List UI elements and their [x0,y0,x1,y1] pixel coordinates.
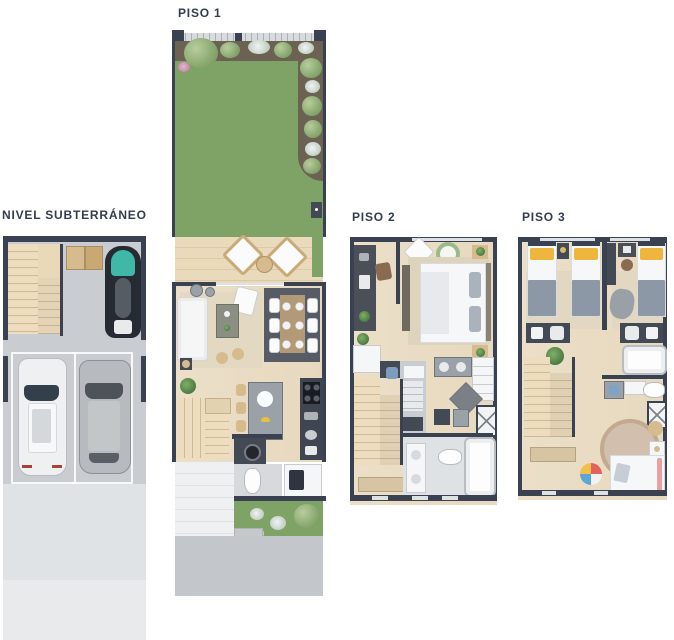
dining-table [280,295,305,353]
plan-nivel-subterraneo [3,236,146,640]
label-piso-2: PISO 2 [352,210,395,224]
vanity-sink [625,326,639,340]
p3-door-gap [542,491,556,495]
bath-vanity [234,438,266,464]
vanity-faucet-items [646,327,658,339]
console-table [358,477,406,492]
dining-rug [264,288,320,362]
bathtub [622,345,667,375]
vanity-faucet-items [531,327,543,339]
garden-left-wall [172,41,175,237]
desk-laptop [623,246,631,253]
piso1-stair-run [205,414,229,458]
p3-staircase [524,357,550,437]
kitchen-plant [180,378,196,394]
storage-box [66,246,85,270]
p3-door-gap [594,491,608,495]
desk-laptop [359,275,370,289]
toilet [244,468,261,494]
side-plant [205,287,215,297]
parking-left-wall-stub [3,356,8,402]
garage-top-wall [3,236,146,242]
p3-stair-run [550,373,572,437]
p2-door-gap [442,496,458,500]
jet-ski-seat [115,278,131,318]
washing-machine [289,470,304,490]
white-car-taillight [22,465,32,468]
stair-shelf [205,398,231,414]
coffee-table [216,304,239,338]
appliance-dial [439,362,449,372]
p3-left-wall [518,237,522,495]
gray-car [79,360,131,474]
nightstand [472,245,488,259]
coffee-table-decor [224,311,230,317]
closet-drawers [403,417,423,431]
white-car-sunroof [32,409,51,443]
white-flowers [305,80,320,93]
garage-right-wall [141,236,146,340]
study-desk [618,243,636,257]
laundry-cabinet [284,464,322,498]
toddler-bed-footboard [657,458,662,492]
bed-headboard [528,242,556,246]
garden-bush [300,58,322,78]
cube-dot [654,446,660,452]
garden-bush [303,158,321,174]
p2-door-gap [372,496,388,500]
p2-floor-plant [357,333,369,345]
bed-pillow-yellow [640,248,663,260]
bed-blanket [638,280,665,316]
plan-piso-1 [172,30,326,596]
house-left-wall [172,282,176,462]
piso1-driveway [175,536,323,596]
rear-garden-bush [294,504,320,528]
storage-box [85,246,103,270]
shelf-basin [609,385,619,395]
floor-lamp [180,358,192,370]
dining-chair [269,298,280,313]
white-car [18,358,67,476]
bar-stool [236,384,246,396]
laundry-basket [453,409,469,427]
bath-shelf [604,381,624,399]
toilet [438,449,462,465]
garden-bush [302,96,322,116]
laundry-basket [434,409,450,425]
island-sink [257,391,273,407]
toddler-pillow [613,463,630,484]
p2-door-gap [412,496,428,500]
p2-room-divider [396,242,400,304]
bed-headboard [486,263,491,341]
single-bed [571,243,601,317]
p3-window-top [540,238,595,241]
single-bed [637,243,666,317]
fence-gate-post [235,33,242,41]
dining-chair [307,318,318,333]
vanity-sink [411,450,421,460]
nightstand-plant [476,247,485,256]
banana-decor [261,417,270,422]
toilet [643,382,665,398]
bed-pillow-yellow [530,248,554,260]
garage-driveway-sidewalk [3,580,146,640]
single-bed [527,243,557,317]
study-desk [354,245,376,331]
closet-shelf [403,365,425,379]
parking-right-wall-stub [141,356,146,402]
plan-piso-3 [518,237,667,500]
pouf [232,348,244,360]
plan-piso-2 [350,237,497,505]
vanity-sink [550,326,564,340]
garage-stair-wall [60,244,63,336]
rear-garden-flowers [270,516,286,530]
bath-vanity [620,323,663,343]
kitchen-counter [300,378,323,460]
counter-sink-small [305,430,317,440]
garden-bush [274,42,292,58]
jet-ski [105,246,141,338]
garden-bush [304,120,322,138]
sofa [177,297,208,361]
floor-lamp-shade [182,360,190,368]
desk-chair [375,262,393,281]
bathtub [464,437,496,497]
dining-chair [307,338,318,353]
bed-blanket [572,280,600,316]
bath-sink [244,444,261,461]
toddler-bed [610,455,665,495]
round-side-table [648,421,663,436]
gray-car-roof [88,401,120,451]
side-lamp [190,284,203,297]
coffee-table-plant [224,325,230,331]
kitchen-island [248,382,283,440]
p3-bottom-wall [518,490,667,496]
appliance-dial [456,362,466,372]
bed-blanket [421,272,449,334]
pink-flowers [178,62,190,72]
deck-side-grass [312,237,323,277]
bar-stool [236,420,246,432]
white-flowers [305,142,321,156]
sliding-door [216,283,284,285]
gray-car-rear-glass [89,453,119,463]
white-car-taillight [52,465,62,468]
round-side-table [256,256,273,273]
dining-chair [269,318,280,333]
utility-box [311,202,322,218]
p3-stair-wall [572,357,575,437]
floorplan-sheet: PISO 1 NIVEL SUBTERRÁNEO PISO 2 PISO 3 [0,0,674,640]
desk-chair [621,259,633,271]
laundry-counter [434,357,472,377]
bar-stool [236,402,246,414]
bed-pillow [469,272,481,298]
double-bed [420,263,486,343]
shelf-unit [607,243,616,285]
garage-stair-run [38,278,60,334]
garden-right-wall [323,41,326,237]
garden-bush [220,42,240,58]
bed-pillow [469,306,481,332]
utility-box-dot [315,208,318,211]
bed-pillow-yellow [574,248,598,260]
pouf [216,352,228,364]
bath-vanity [526,323,570,343]
label-piso-3: PISO 3 [522,210,565,224]
p3-window-top [610,238,650,241]
gray-car-windshield [85,383,123,399]
nightstand-plant [476,348,485,357]
bed-headboard [572,242,600,246]
white-flowers [298,42,314,54]
closet [353,345,381,373]
counter-appliance [304,412,318,420]
vanity-sink [411,474,421,484]
garage-stair-landing [38,244,60,278]
p2-stair-run [380,395,400,465]
vanity-chair [386,367,398,379]
rear-garden-flowers [250,508,264,520]
wardrobe [402,265,410,331]
label-piso-1: PISO 1 [178,6,221,20]
desk-plant [359,311,370,322]
dining-chair [307,298,318,313]
rear-walkway [175,462,234,536]
p2-staircase [354,379,380,465]
dining-chair [269,338,280,353]
jet-ski-tail [114,320,132,334]
counter-item [305,446,317,455]
cooktop [303,382,320,404]
garage-staircase [8,244,38,334]
console-table [530,447,576,462]
piso1-staircase [177,398,205,458]
nightstand [557,243,569,259]
bath-vanity [406,443,426,493]
nightstand-lamp [560,247,566,253]
white-car-windshield [24,385,59,401]
bed-blanket [528,280,556,316]
white-flowers [248,40,270,54]
toy-ball [580,463,602,485]
closet-shelf [403,381,423,411]
bed-headboard [638,242,665,246]
label-nivel-subterraneo: NIVEL SUBTERRÁNEO [2,208,147,222]
desk-items [359,253,369,261]
p3-bath-wall [602,375,664,379]
jet-ski-hood [111,250,135,276]
